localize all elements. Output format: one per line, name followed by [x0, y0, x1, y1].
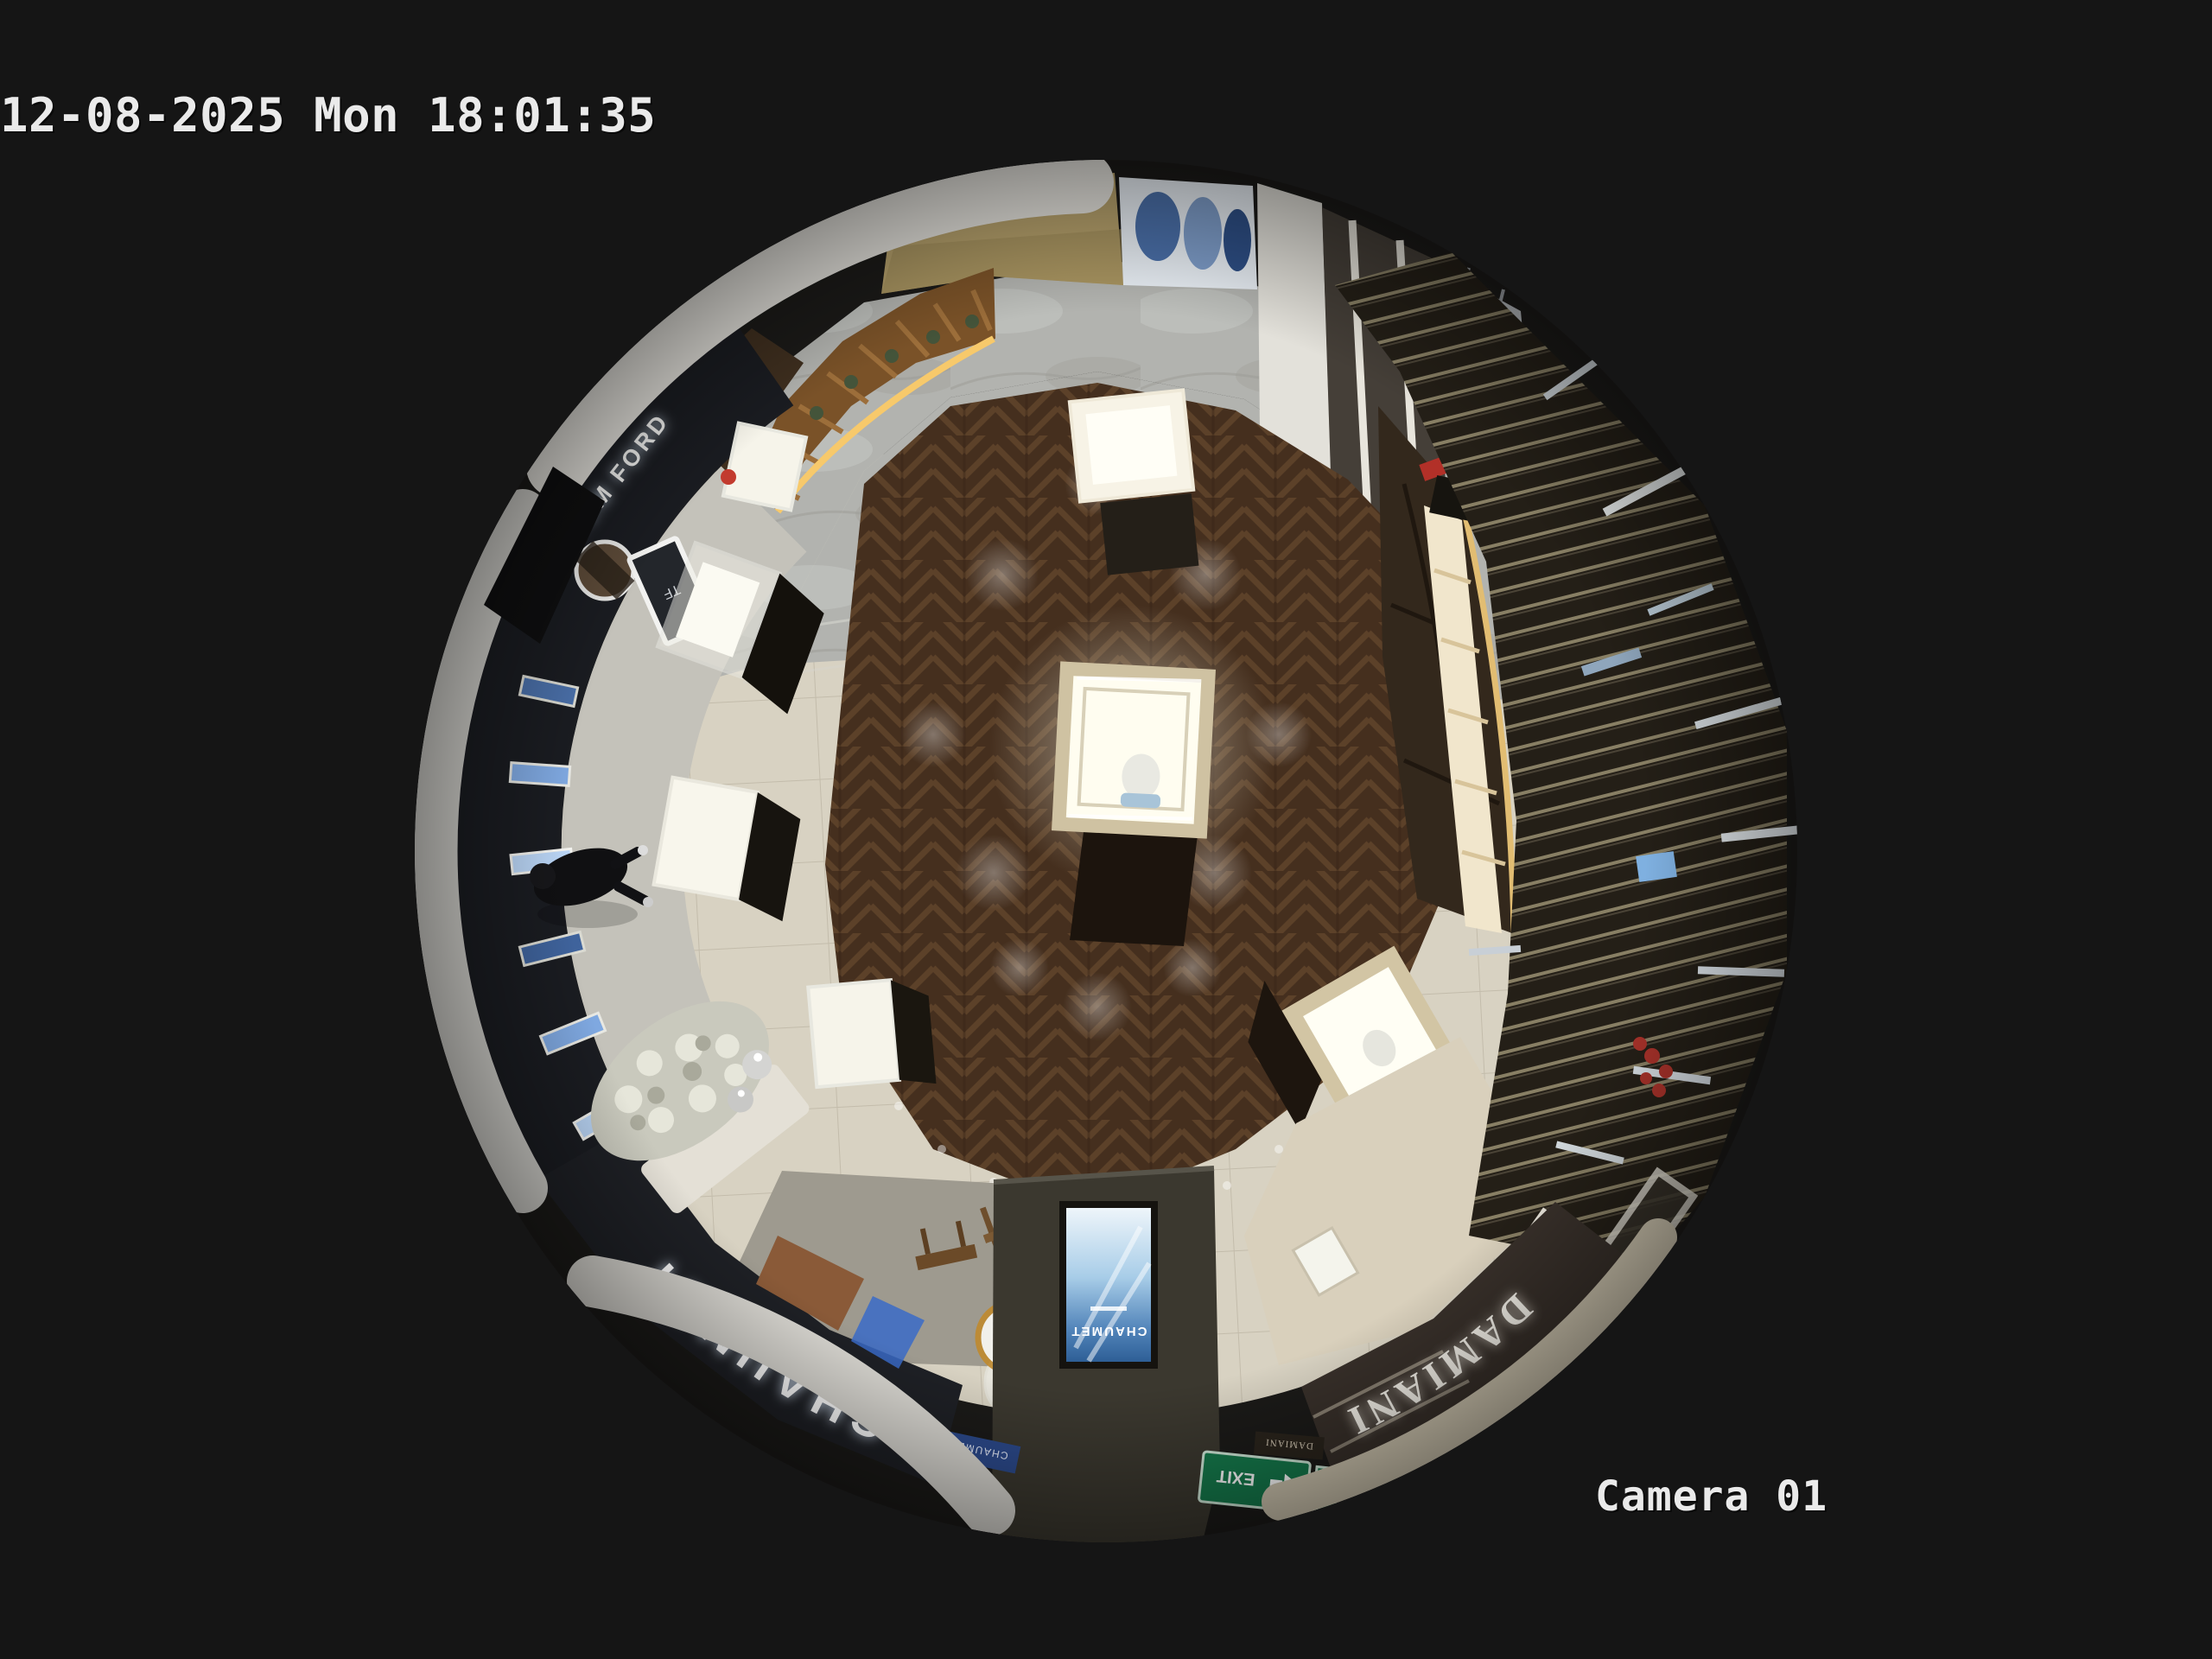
osd-timestamp: 12-08-2025 Mon 18:01:35	[0, 88, 656, 143]
vignette	[415, 160, 1797, 1542]
osd-camera-label: Camera 01	[1595, 1472, 1827, 1521]
cctv-frame: TOM FORD TOM FORD TF	[0, 0, 2212, 1659]
fisheye-camera-view: TOM FORD TOM FORD TF	[0, 0, 2212, 1659]
